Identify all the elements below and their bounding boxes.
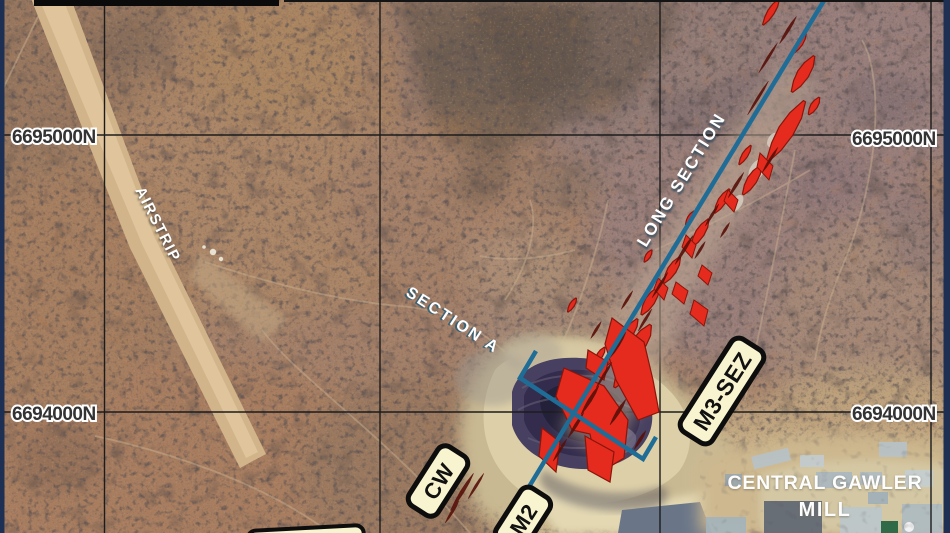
- svg-text:6695000N: 6695000N: [852, 129, 936, 150]
- svg-text:CENTRAL GAWLER: CENTRAL GAWLER: [727, 472, 922, 494]
- svg-text:MILL: MILL: [799, 499, 852, 521]
- svg-text:6694000N: 6694000N: [852, 404, 936, 425]
- svg-text:6695000N: 6695000N: [12, 127, 96, 148]
- svg-text:6694000N: 6694000N: [12, 404, 96, 425]
